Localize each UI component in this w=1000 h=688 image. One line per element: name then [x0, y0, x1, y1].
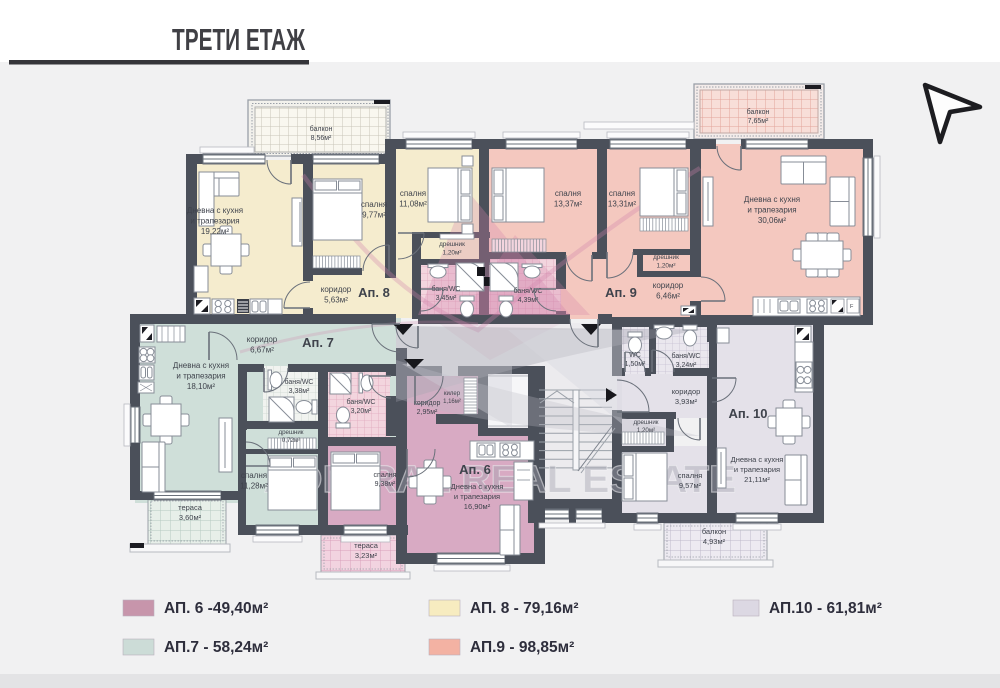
svg-text:13,31м²: 13,31м² — [608, 200, 637, 209]
svg-text:1,20м²: 1,20м² — [637, 427, 655, 434]
svg-text:тераса: тераса — [178, 503, 203, 512]
svg-text:спалня: спалня — [609, 189, 635, 198]
svg-text:1,16м²: 1,16м² — [443, 399, 461, 405]
svg-text:0,72м²: 0,72м² — [282, 437, 300, 444]
svg-text:30,06м²: 30,06м² — [758, 216, 787, 225]
svg-text:коридор: коридор — [653, 281, 684, 290]
svg-text:4,93м²: 4,93м² — [703, 537, 726, 546]
svg-text:3,38м²: 3,38м² — [289, 388, 310, 395]
svg-text:13,37м²: 13,37м² — [554, 200, 583, 209]
svg-text:балкон: балкон — [747, 108, 770, 116]
svg-text:Дневна с кухня: Дневна с кухня — [744, 195, 800, 204]
svg-text:9,57м²: 9,57м² — [679, 481, 702, 490]
svg-text:дрешник: дрешник — [278, 429, 303, 436]
svg-text:3,24м²: 3,24м² — [676, 362, 697, 369]
svg-text:16,90м²: 16,90м² — [464, 502, 491, 511]
svg-text:ТРЕТИ ЕТАЖ: ТРЕТИ ЕТАЖ — [172, 22, 306, 57]
svg-text:спалня: спалня — [241, 471, 267, 480]
svg-text:баня/WC: баня/WC — [284, 378, 313, 386]
svg-text:и трапезария: и трапезария — [734, 465, 780, 474]
svg-text:спалня: спалня — [361, 200, 387, 209]
svg-text:спалня: спалня — [555, 189, 581, 198]
svg-text:3,23м²: 3,23м² — [355, 551, 378, 560]
svg-text:3,60м²: 3,60м² — [179, 513, 202, 522]
svg-text:6,67м²: 6,67м² — [250, 346, 274, 355]
svg-text:АП.7 - 58,24м²: АП.7 - 58,24м² — [164, 639, 268, 656]
svg-text:6,46м²: 6,46м² — [656, 292, 680, 301]
svg-text:АП. 6 -49,40м²: АП. 6 -49,40м² — [164, 600, 268, 617]
svg-text:балкон: балкон — [702, 527, 726, 536]
svg-text:баня/WC: баня/WC — [346, 398, 375, 406]
svg-text:спалня: спалня — [374, 472, 397, 479]
svg-text:АП.9 - 98,85м²: АП.9 - 98,85м² — [470, 639, 574, 656]
svg-text:АП.10 - 61,81м²: АП.10 - 61,81м² — [769, 600, 882, 617]
svg-text:и трапезария: и трапезария — [176, 372, 225, 381]
svg-text:11,08м²: 11,08м² — [399, 200, 427, 209]
svg-text:и трапезария: и трапезария — [454, 492, 500, 501]
svg-text:дрешник: дрешник — [633, 419, 658, 426]
svg-text:Дневна с кухня: Дневна с кухня — [173, 361, 229, 370]
svg-text:Дневна с кухня: Дневна с кухня — [187, 206, 243, 215]
svg-text:11,28м²: 11,28м² — [240, 482, 268, 491]
svg-text:и трапезария: и трапезария — [747, 206, 796, 215]
svg-text:АП. 8 - 79,16м²: АП. 8 - 79,16м² — [470, 600, 579, 617]
svg-text:спалня: спалня — [678, 471, 703, 480]
svg-text:баня/WC: баня/WC — [671, 352, 700, 360]
svg-text:килер: килер — [444, 391, 461, 397]
svg-text:Дневна с кухня: Дневна с кухня — [451, 482, 504, 491]
svg-text:18,10м²: 18,10м² — [187, 382, 216, 391]
svg-text:дрешник: дрешник — [439, 241, 465, 248]
svg-text:1,20м²: 1,20м² — [657, 262, 676, 269]
svg-text:3,20м²: 3,20м² — [351, 408, 372, 415]
svg-text:Дневна с кухня: Дневна с кухня — [731, 455, 784, 464]
svg-text:5,63м²: 5,63м² — [324, 296, 348, 305]
svg-text:и трапезария: и трапезария — [190, 217, 239, 226]
svg-text:балкон: балкон — [310, 125, 333, 133]
svg-text:Ап. 10: Ап. 10 — [729, 406, 768, 421]
svg-text:Ап. 8: Ап. 8 — [358, 285, 390, 300]
svg-text:коридор: коридор — [321, 285, 352, 294]
svg-text:коридор: коридор — [247, 335, 278, 344]
svg-text:9,38м²: 9,38м² — [375, 481, 396, 488]
svg-text:1,20м²: 1,20м² — [443, 249, 462, 256]
svg-text:8,56м²: 8,56м² — [311, 135, 332, 142]
svg-text:Ап. 9: Ап. 9 — [605, 285, 637, 300]
svg-text:21,11м²: 21,11м² — [744, 475, 770, 484]
svg-text:19,22м²: 19,22м² — [201, 227, 230, 236]
svg-text:коридор: коридор — [672, 387, 701, 396]
svg-text:9,77м²: 9,77м² — [362, 211, 386, 220]
svg-text:7,65м²: 7,65м² — [748, 118, 769, 125]
svg-text:спалня: спалня — [400, 189, 426, 198]
svg-text:3,93м²: 3,93м² — [675, 397, 698, 406]
svg-text:дрешник: дрешник — [653, 254, 679, 261]
svg-text:Ап. 6: Ап. 6 — [459, 462, 491, 477]
svg-text:2,95м²: 2,95м² — [417, 409, 438, 416]
svg-text:Ап. 7: Ап. 7 — [302, 335, 334, 350]
